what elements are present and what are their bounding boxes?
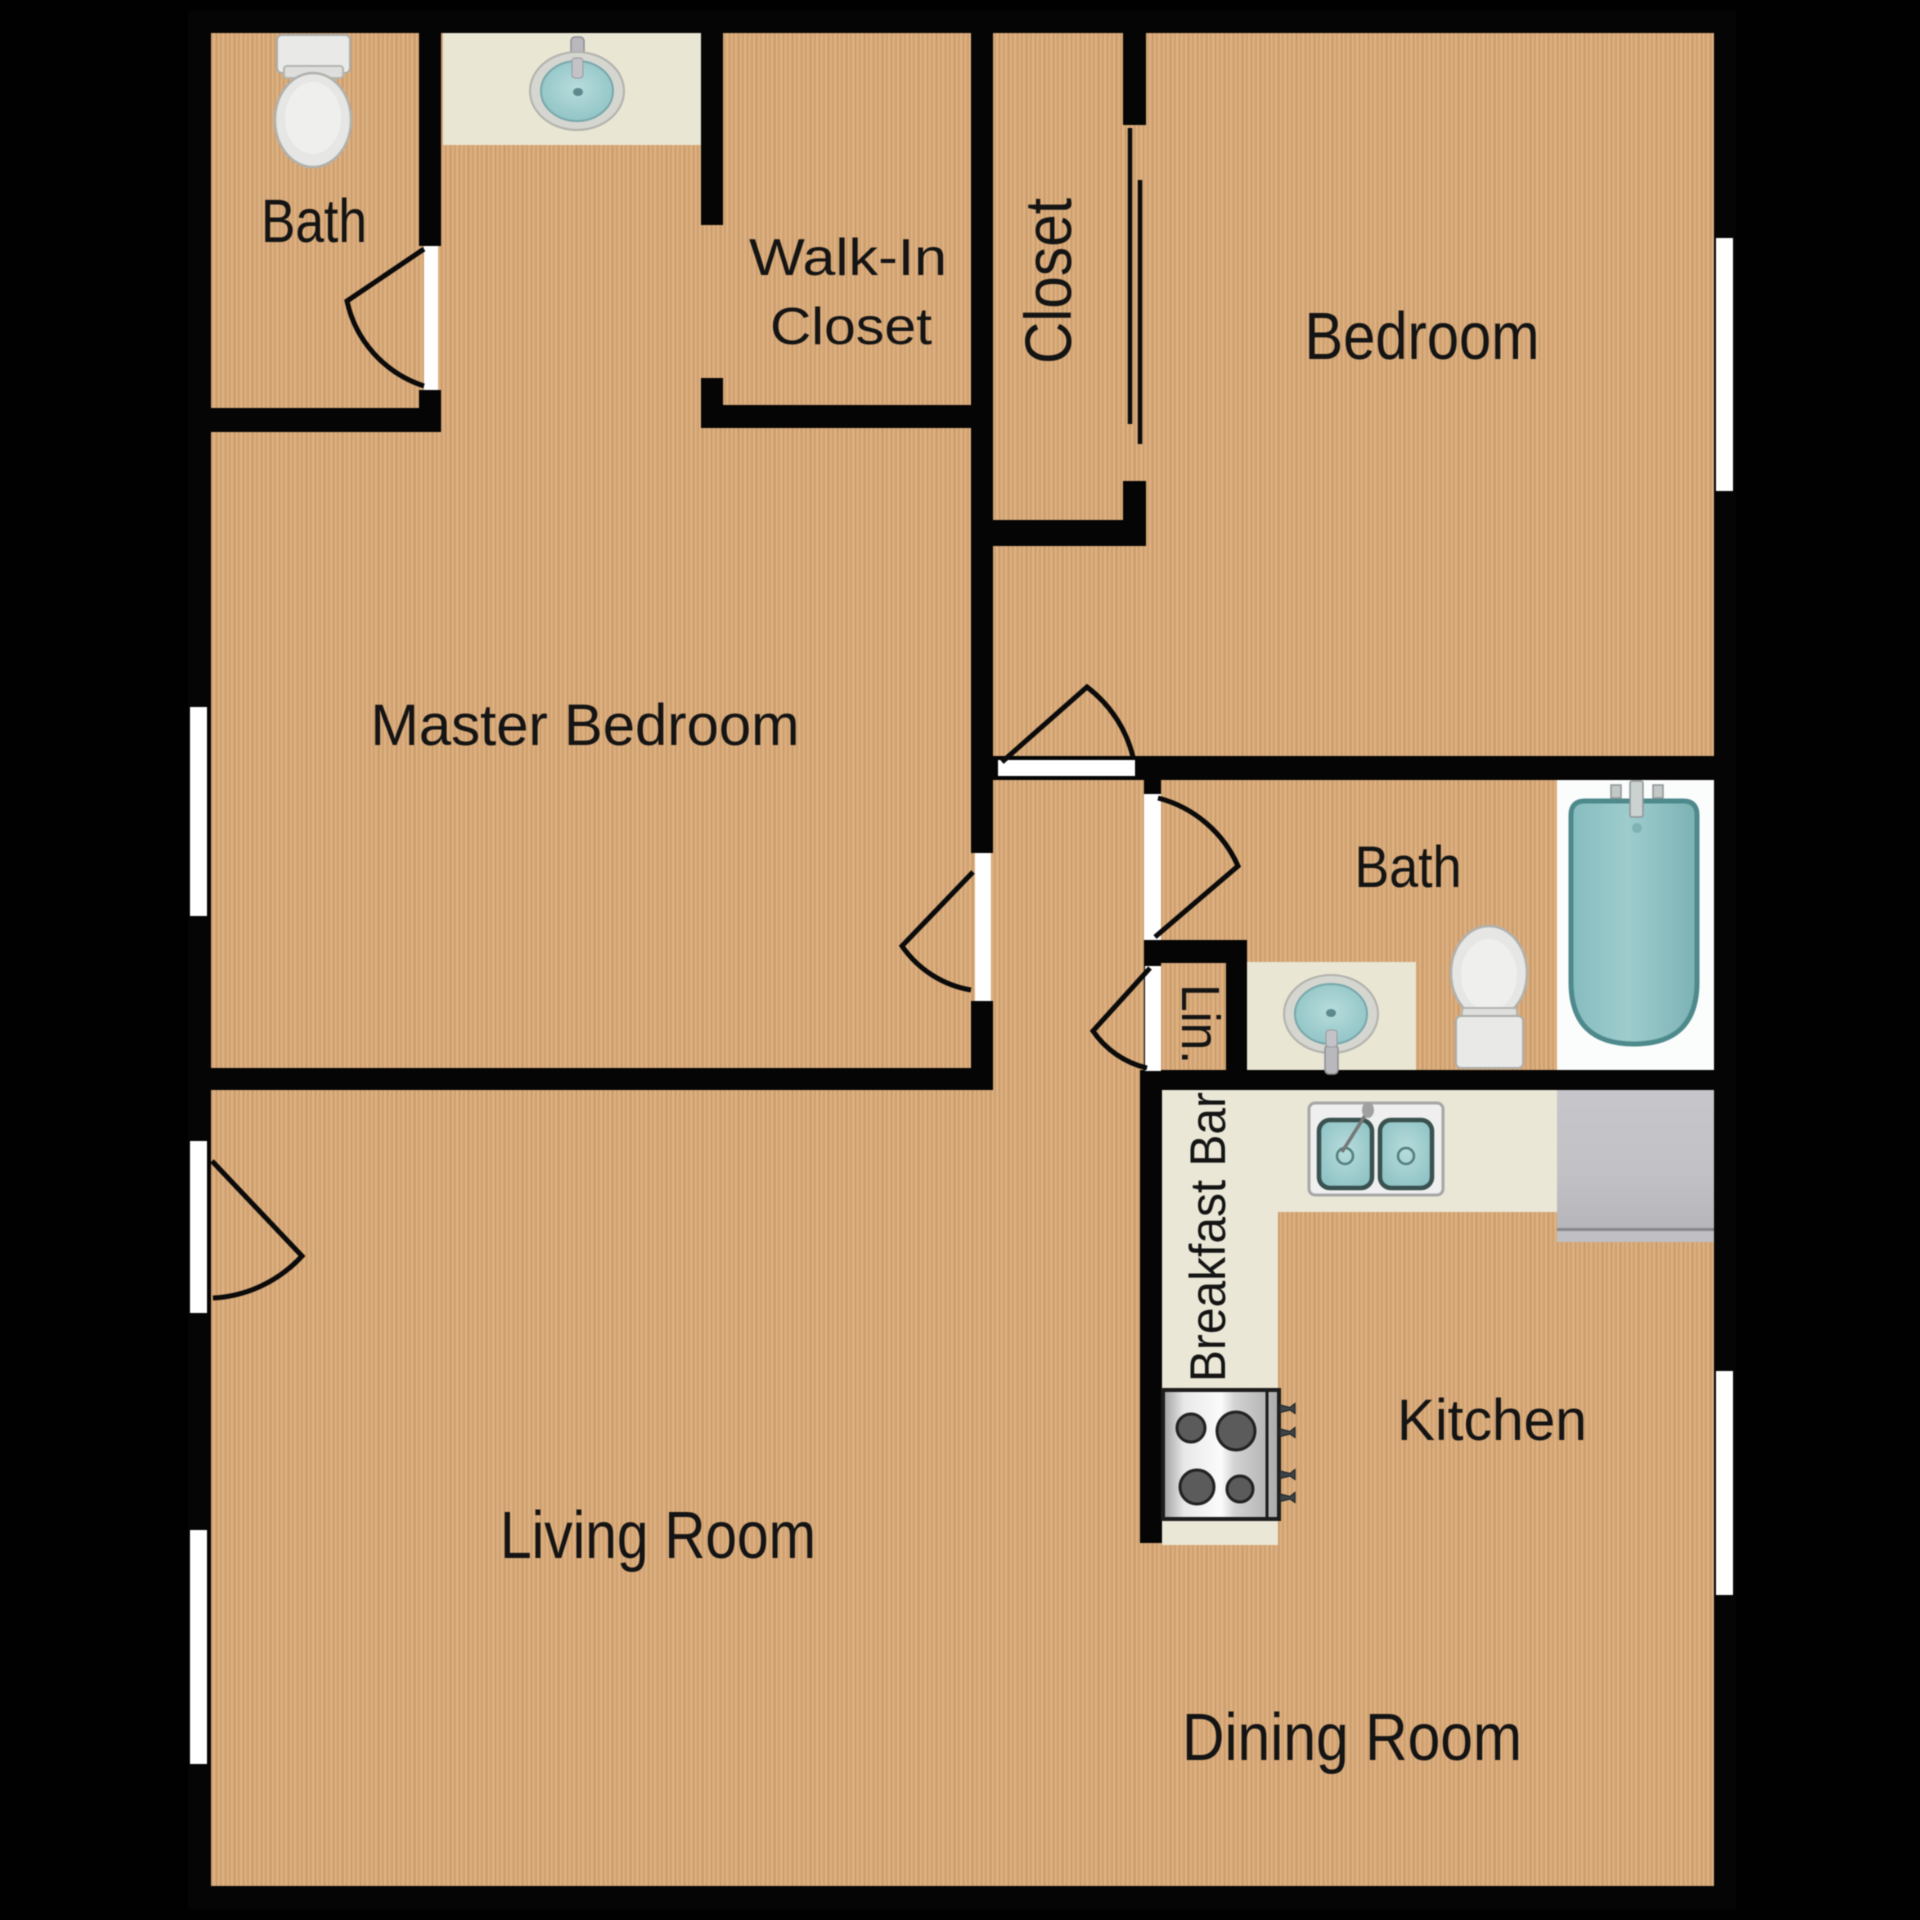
svg-text:Closet: Closet (1011, 198, 1085, 364)
svg-text:Living Room: Living Room (500, 1498, 816, 1573)
svg-text:Dining Room: Dining Room (1182, 1700, 1522, 1775)
svg-text:Lin.: Lin. (1170, 984, 1230, 1064)
svg-text:Bath: Bath (261, 187, 367, 255)
svg-text:Bath: Bath (1355, 835, 1462, 900)
svg-text:Master Bedroom: Master Bedroom (371, 693, 800, 758)
svg-text:Walk-In: Walk-In (749, 229, 947, 287)
svg-text:Breakfast Bar: Breakfast Bar (1180, 1092, 1236, 1382)
svg-text:Closet: Closet (770, 298, 933, 356)
svg-text:Kitchen: Kitchen (1397, 1388, 1587, 1453)
svg-text:Bedroom: Bedroom (1305, 299, 1540, 374)
